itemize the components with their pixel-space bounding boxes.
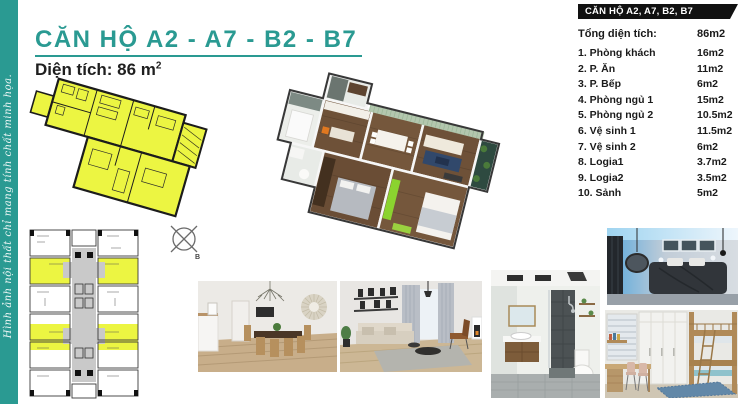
room-area: 5m2 — [697, 187, 718, 199]
photo-bathroom — [491, 270, 600, 398]
table-row: 6. Vệ sinh 111.5m2 — [578, 125, 728, 141]
room-label: 1. Phòng khách — [578, 47, 656, 59]
room-label: 9. Logia2 — [578, 172, 624, 184]
room-label: 6. Vệ sinh 1 — [578, 125, 636, 137]
table-row: 7. Vệ sinh 26m2 — [578, 141, 728, 157]
compass-icon: B — [164, 222, 210, 268]
total-area: 86m2 — [697, 28, 725, 40]
room-area: 3.5m2 — [697, 172, 727, 184]
room-label: 2. P. Ăn — [578, 63, 615, 75]
table-row-total: Tổng diện tích: 86m2 — [578, 28, 728, 47]
photo-dining-room — [198, 281, 337, 372]
room-label: 8. Logia1 — [578, 156, 624, 168]
room-area: 6m2 — [697, 78, 718, 90]
compass-north-label: B — [195, 254, 200, 261]
total-label: Tổng diện tích: — [578, 28, 657, 40]
room-label: 3. P. Bếp — [578, 78, 621, 90]
room-label: 7. Vệ sinh 2 — [578, 141, 636, 153]
room-area: 15m2 — [697, 94, 724, 106]
table-row: 4. Phòng ngủ 115m2 — [578, 94, 728, 110]
room-area: 11.5m2 — [697, 125, 732, 137]
table-row: 8. Logia13.7m2 — [578, 156, 728, 172]
floor-plan-3d — [260, 50, 560, 250]
table-row: 9. Logia23.5m2 — [578, 172, 728, 188]
mirror — [509, 306, 535, 326]
area-subtitle-sup: 2 — [156, 60, 162, 71]
sunburst-mirror — [301, 294, 327, 320]
side-note-text: Hình ảnh nội thất chỉ mang tính chất min… — [3, 70, 18, 342]
key-plan — [27, 228, 141, 402]
room-area: 10.5m2 — [697, 109, 733, 121]
unit-table-header: CĂN HỘ A2, A7, B2, B7 — [578, 4, 738, 19]
table-row: 10. Sảnh5m2 — [578, 187, 728, 203]
bed — [649, 258, 727, 294]
photo-kids-bedroom — [605, 310, 738, 398]
unit-table: Tổng diện tích: 86m2 1. Phòng khách16m2 … — [578, 28, 728, 203]
coffee-table — [415, 347, 441, 355]
table-row: 3. P. Bếp6m2 — [578, 78, 728, 94]
sofa — [356, 323, 414, 344]
room-area: 3.7m2 — [697, 156, 727, 168]
table-row: 5. Phòng ngủ 210.5m2 — [578, 109, 728, 125]
table-row: 2. P. Ăn11m2 — [578, 63, 728, 79]
room-area: 16m2 — [697, 47, 724, 59]
room-label: 5. Phòng ngủ 2 — [578, 109, 653, 121]
wall-art — [663, 240, 715, 251]
room-label: 10. Sảnh — [578, 187, 621, 199]
table-row: 1. Phòng khách16m2 — [578, 47, 728, 63]
photo-master-bedroom — [607, 228, 738, 305]
floor-plan-2d — [24, 76, 229, 226]
photo-living-room — [340, 281, 482, 372]
room-area: 6m2 — [697, 141, 718, 153]
room-area: 11m2 — [697, 63, 723, 75]
room-label: 4. Phòng ngủ 1 — [578, 94, 653, 106]
